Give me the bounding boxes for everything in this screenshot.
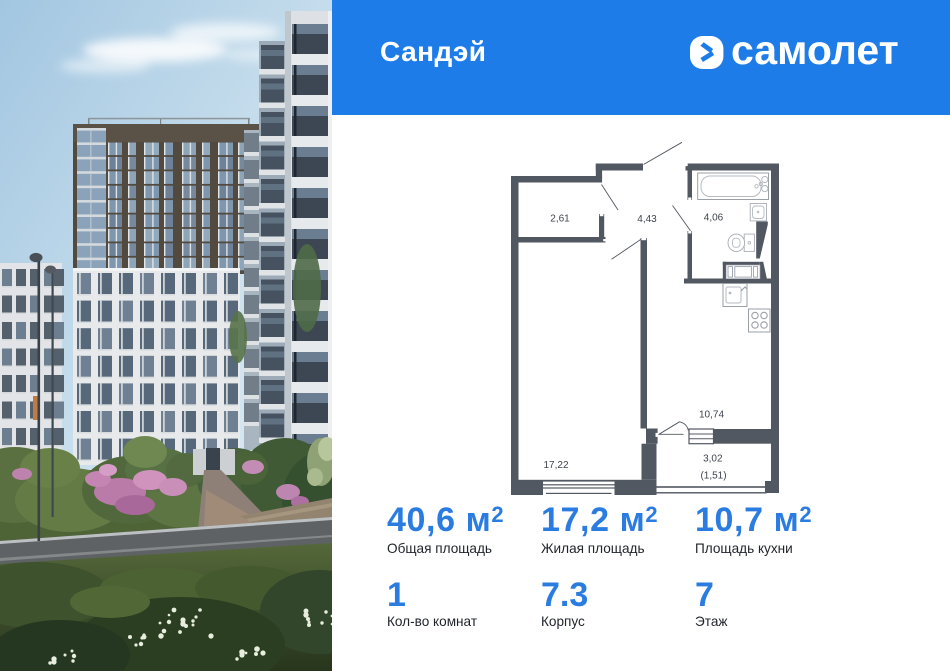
svg-text:17,22: 17,22 (543, 460, 568, 471)
svg-text:4,06: 4,06 (704, 213, 724, 224)
svg-text:3,02: 3,02 (703, 454, 723, 465)
svg-text:4,43: 4,43 (637, 214, 657, 225)
svg-text:2,61: 2,61 (550, 214, 570, 225)
svg-text:(1,51): (1,51) (700, 471, 726, 482)
svg-text:10,74: 10,74 (699, 410, 724, 421)
